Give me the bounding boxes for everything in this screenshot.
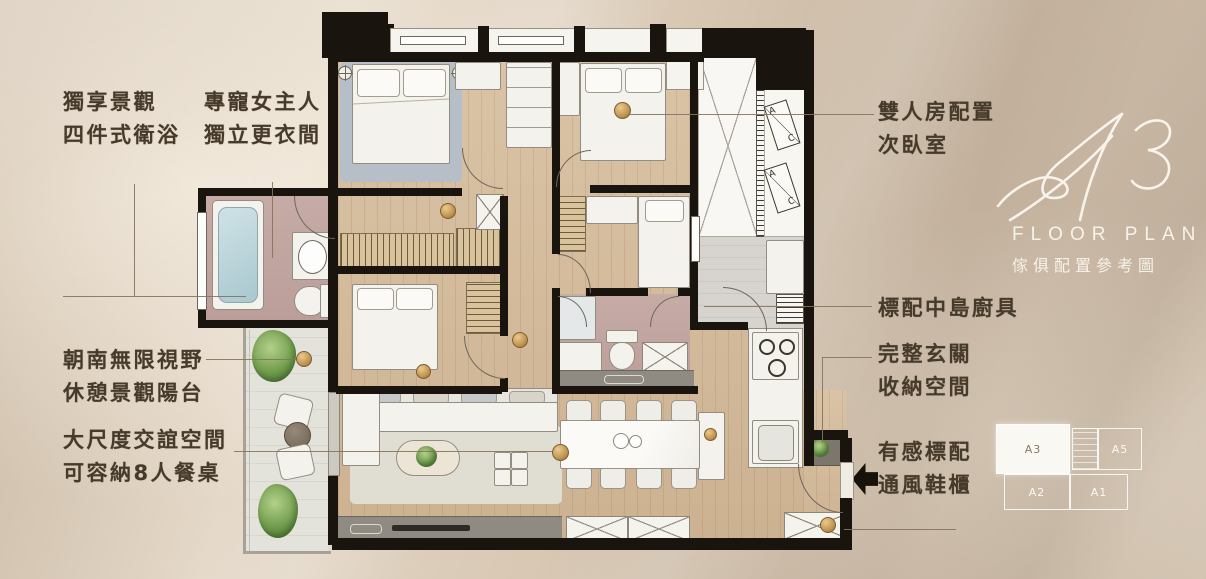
interior-wall — [336, 188, 462, 196]
dining-chair — [671, 468, 697, 489]
annotation-foyer-storage: 完整玄關 收納空間 — [878, 338, 972, 404]
annotation-line: 朝南無限視野 — [63, 344, 204, 377]
master-bed — [352, 64, 450, 164]
annotation-master-bath: 獨享景觀 四件式衛浴 — [63, 86, 181, 152]
second-vanity — [558, 342, 602, 372]
pillow — [403, 69, 446, 97]
foyer-right-wall — [840, 438, 852, 462]
burner — [759, 339, 775, 355]
leader-knob-balcony — [296, 351, 312, 367]
window-sill — [498, 36, 564, 45]
pouf — [511, 452, 528, 469]
interior-wall — [552, 386, 698, 394]
leader-line — [234, 451, 558, 452]
leader-line — [272, 182, 273, 258]
annotation-line: 通風鞋櫃 — [878, 469, 972, 502]
dining-chair — [671, 400, 697, 421]
island-knob — [704, 428, 717, 441]
tv-screen — [392, 525, 470, 531]
bed-fold-line — [353, 98, 449, 104]
annotation-line: 標配中島廚具 — [878, 292, 1019, 325]
pillow — [585, 68, 622, 93]
linen-cabinet — [506, 62, 552, 148]
burner — [779, 339, 795, 355]
logo-subtitle: FLOOR PLAN — [1012, 224, 1202, 246]
ac-label-c: C — [787, 133, 796, 144]
interior-window — [691, 216, 700, 262]
bathroom-cabinet — [642, 342, 688, 372]
closet-hanger-rack — [340, 233, 454, 268]
third-bed — [352, 284, 438, 370]
interior-wall — [552, 190, 560, 254]
stove — [752, 332, 799, 380]
pouf — [494, 452, 511, 469]
balcony-railing — [249, 330, 250, 552]
burner — [768, 359, 786, 377]
leader-line — [134, 184, 135, 296]
annotation-shoe-cabinet: 有感標配 通風鞋櫃 — [878, 436, 972, 502]
ledge-ornament — [604, 375, 644, 384]
annotation-line: 四件式衛浴 — [63, 119, 181, 152]
kitchen-island — [698, 412, 725, 480]
fourth-bed — [638, 196, 690, 288]
annotation-line: 雙人房配置 — [878, 96, 996, 129]
ac-label-a: A — [768, 169, 777, 180]
annotation-line: 獨享景觀 — [63, 86, 181, 119]
dining-chair — [600, 400, 626, 421]
dining-chair — [566, 400, 592, 421]
void-core — [698, 55, 758, 237]
balcony-railing — [243, 328, 246, 554]
annotation-line: 專寵女主人 — [204, 86, 322, 119]
annotation-line: 有感標配 — [878, 436, 972, 469]
annotation-line: 收納空間 — [878, 371, 972, 404]
outer-wall-right-upper — [804, 30, 814, 240]
closet-hanger-rack — [456, 228, 502, 268]
kitchen-shelf — [776, 294, 804, 324]
dining-chair — [600, 468, 626, 489]
unit-logo-script-a3 — [992, 108, 1192, 228]
interior-wall — [500, 196, 508, 336]
annotation-line: 大尺度交誼空間 — [63, 424, 228, 457]
interior-wall — [336, 266, 506, 274]
sink-basin — [758, 425, 794, 461]
pillow — [357, 288, 394, 310]
master-dresser — [455, 62, 501, 90]
bathroom-sink — [298, 240, 327, 274]
interior-wall — [690, 55, 698, 330]
interior-wall — [336, 386, 502, 394]
keyplan-label: A2 — [1029, 486, 1046, 499]
bathroom-vanity — [292, 232, 332, 280]
keyplan-unit-a1: A1 — [1070, 474, 1128, 510]
leader-line — [206, 359, 306, 360]
fourth-bedroom-desk — [586, 196, 638, 224]
annotation-line: 完整玄關 — [878, 338, 972, 371]
pouf — [511, 469, 528, 486]
balcony-railing — [243, 551, 331, 554]
fourth-bedroom-wardrobe — [556, 196, 586, 252]
ceiling-light-icon — [338, 66, 352, 80]
leader-line — [704, 306, 872, 307]
centerpiece — [629, 435, 642, 448]
keyplan-unit-a3: A3 — [996, 424, 1070, 474]
floor-plan-poster: A C A C — [0, 0, 1206, 579]
wall-bottom — [332, 538, 852, 550]
annotation-living-dining: 大尺度交誼空間 可容納8人餐桌 — [63, 424, 228, 490]
logo-caption: 傢俱配置參考圖 — [1012, 252, 1159, 276]
leader-line — [844, 529, 956, 530]
pillow — [357, 69, 400, 97]
keyplan-label: A5 — [1112, 443, 1129, 456]
annotation-line: 可容納8人餐桌 — [63, 457, 228, 490]
pillow — [645, 200, 684, 222]
unit-logo — [992, 108, 1192, 228]
bathroom-wall — [198, 188, 338, 196]
sofa-chaise — [342, 388, 380, 466]
third-bedroom-stool — [416, 364, 431, 379]
bathroom-ledge — [552, 370, 694, 387]
closet-stool — [440, 203, 456, 219]
key-plan: A3 A5 A2 A1 — [988, 416, 1148, 520]
annotation-line: 次臥室 — [878, 129, 996, 162]
annotation-balcony: 朝南無限視野 休憩景觀陽台 — [63, 344, 204, 410]
annotation-line: 獨立更衣間 — [204, 119, 322, 152]
annotation-walkin-closet: 專寵女主人 獨立更衣間 — [204, 86, 322, 152]
interior-wall — [586, 288, 648, 296]
dining-table — [560, 420, 700, 469]
keyplan-label: A3 — [1025, 443, 1042, 456]
annotation-island-kitchen: 標配中島廚具 — [878, 292, 1019, 325]
kitchen-pantry — [766, 240, 804, 294]
dining-chair — [566, 468, 592, 489]
third-bedroom-wardrobe — [466, 282, 502, 334]
pillow — [625, 68, 662, 93]
ac-label-a: A — [768, 106, 777, 117]
ac-label-c: C — [787, 196, 796, 207]
centerpiece — [613, 433, 629, 449]
leader-line — [822, 357, 823, 443]
annotation-line: 休憩景觀陽台 — [63, 377, 204, 410]
kitchen-sink — [752, 420, 799, 464]
bathtub-basin — [218, 207, 258, 303]
wall — [702, 28, 806, 58]
dining-chair — [636, 468, 662, 489]
leader-knob-second-bed — [614, 102, 631, 119]
wall — [756, 56, 806, 90]
window-sill — [400, 36, 466, 45]
annotation-second-bedroom: 雙人房配置 次臥室 — [878, 96, 996, 162]
dining-chair — [636, 400, 662, 421]
leader-line — [63, 296, 246, 297]
shoe-cabinet-knob — [820, 517, 836, 533]
bathroom-wall — [198, 320, 338, 328]
leader-line — [822, 357, 872, 358]
balcony-sliding-door — [328, 392, 340, 476]
leader-line — [630, 114, 874, 115]
pouf — [494, 469, 511, 486]
leader-knob-dining — [552, 444, 569, 461]
entry-arrow-icon — [852, 460, 878, 498]
wall-top — [332, 52, 704, 62]
pillow — [396, 288, 433, 310]
keyplan-core — [1072, 428, 1098, 470]
second-toilet — [609, 342, 635, 370]
keyplan-label: A1 — [1091, 486, 1108, 499]
pouf-set — [494, 452, 528, 486]
interior-wall — [590, 185, 698, 193]
hallway-stool — [512, 332, 528, 348]
keyplan-unit-a5: A5 — [1098, 428, 1142, 470]
keyplan-unit-a2: A2 — [1004, 474, 1070, 510]
bathtub — [212, 200, 264, 310]
console-ornament — [350, 524, 382, 534]
